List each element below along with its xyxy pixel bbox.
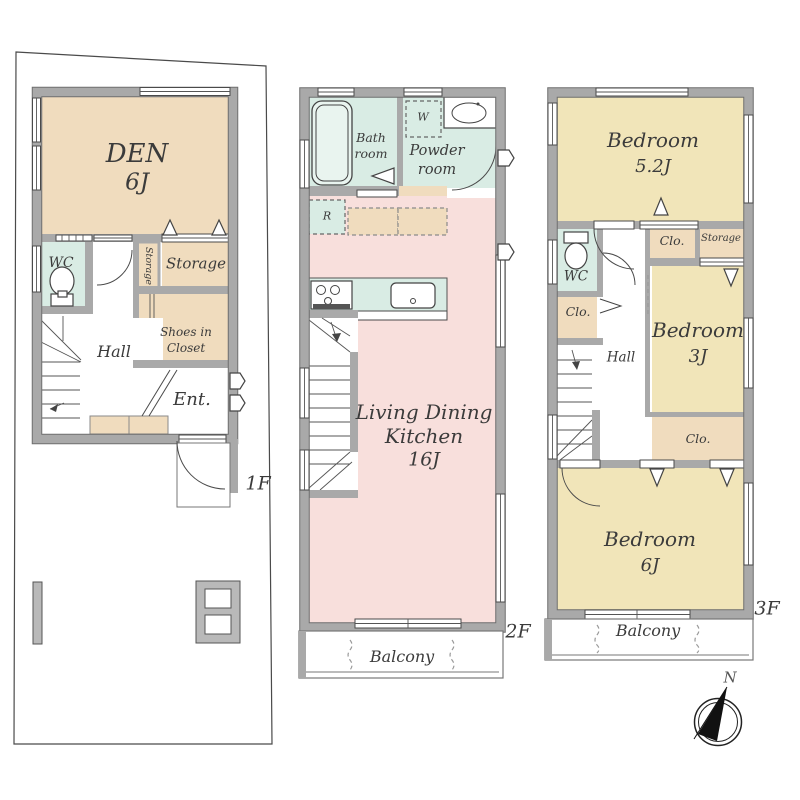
stairs-3f bbox=[557, 345, 600, 462]
vent-marker bbox=[498, 150, 514, 166]
fridge-label: R bbox=[323, 211, 331, 222]
hall-3f-label: Hall bbox=[607, 351, 635, 365]
lot-wall-segment bbox=[33, 582, 42, 644]
bedroom-a-size-label: 5.2J bbox=[635, 158, 671, 176]
hall-1f-label: Hall bbox=[97, 344, 131, 360]
compass-icon bbox=[694, 687, 742, 746]
balcony-2f-label: Balcony bbox=[370, 649, 434, 665]
floor2-label: 2F bbox=[505, 623, 530, 642]
closet-b-label: Clo. bbox=[566, 306, 591, 319]
bath-label-line2: room bbox=[355, 148, 388, 161]
furniture-space bbox=[398, 208, 447, 235]
balcony-3f-label: Balcony bbox=[616, 623, 680, 639]
toilet-icon bbox=[564, 232, 588, 269]
closet-a-label: Clo. bbox=[660, 235, 685, 248]
toilet-icon bbox=[50, 267, 74, 306]
utility-block bbox=[196, 581, 240, 643]
entrance-label: Ent. bbox=[173, 391, 211, 409]
bedroom-c-size-label: 6J bbox=[641, 557, 660, 575]
door-swing-marker bbox=[600, 299, 621, 313]
bedroom-c-label: Bedroom bbox=[604, 529, 696, 549]
entrance-porch bbox=[177, 443, 230, 507]
floorplan-page: DEN 6J WC Storage Storage Shoes in Close… bbox=[0, 0, 800, 800]
furniture-space bbox=[348, 208, 398, 235]
closet-c-label: Clo. bbox=[686, 433, 711, 446]
floor2-plan bbox=[299, 88, 514, 678]
kitchen-sink-icon bbox=[391, 283, 435, 308]
washer-label: W bbox=[417, 112, 428, 123]
den-label: DEN bbox=[106, 141, 169, 167]
powder-label-line1: Powder bbox=[409, 144, 464, 159]
bath-label-line1: Bath bbox=[356, 132, 386, 145]
powder-label-line2: room bbox=[418, 163, 456, 178]
ldk-label-line2: Kitchen bbox=[385, 426, 463, 446]
stove-icon bbox=[311, 281, 352, 309]
storage-1f-label: Storage bbox=[166, 257, 226, 272]
compass-north-label: N bbox=[723, 671, 736, 686]
stairs-2f bbox=[309, 318, 358, 490]
bedroom-a-label: Bedroom bbox=[607, 130, 699, 150]
bathtub-icon bbox=[312, 101, 352, 185]
floor3-label: 3F bbox=[754, 600, 779, 619]
floor1-label: 1F bbox=[245, 475, 270, 494]
storage-3f-label: Storage bbox=[701, 234, 741, 244]
stairs-1f bbox=[41, 314, 88, 434]
ldk-size-label: 16J bbox=[408, 451, 440, 470]
shoes-closet-label-line1: Shoes in bbox=[160, 326, 212, 338]
bedroom-b-size-label: 3J bbox=[689, 348, 708, 366]
wc-3f-label: WC bbox=[564, 270, 588, 284]
wc-1f-label: WC bbox=[48, 256, 73, 270]
washbasin-icon bbox=[444, 97, 496, 128]
ldk-label-line1: Living Dining bbox=[356, 402, 493, 422]
closet-strip-label: Storage bbox=[143, 247, 153, 285]
den-size-label: 6J bbox=[125, 172, 149, 195]
bedroom-b-label: Bedroom bbox=[652, 320, 744, 340]
vent-marker bbox=[498, 244, 514, 260]
shoes-closet-label-line2: Closet bbox=[167, 342, 205, 354]
